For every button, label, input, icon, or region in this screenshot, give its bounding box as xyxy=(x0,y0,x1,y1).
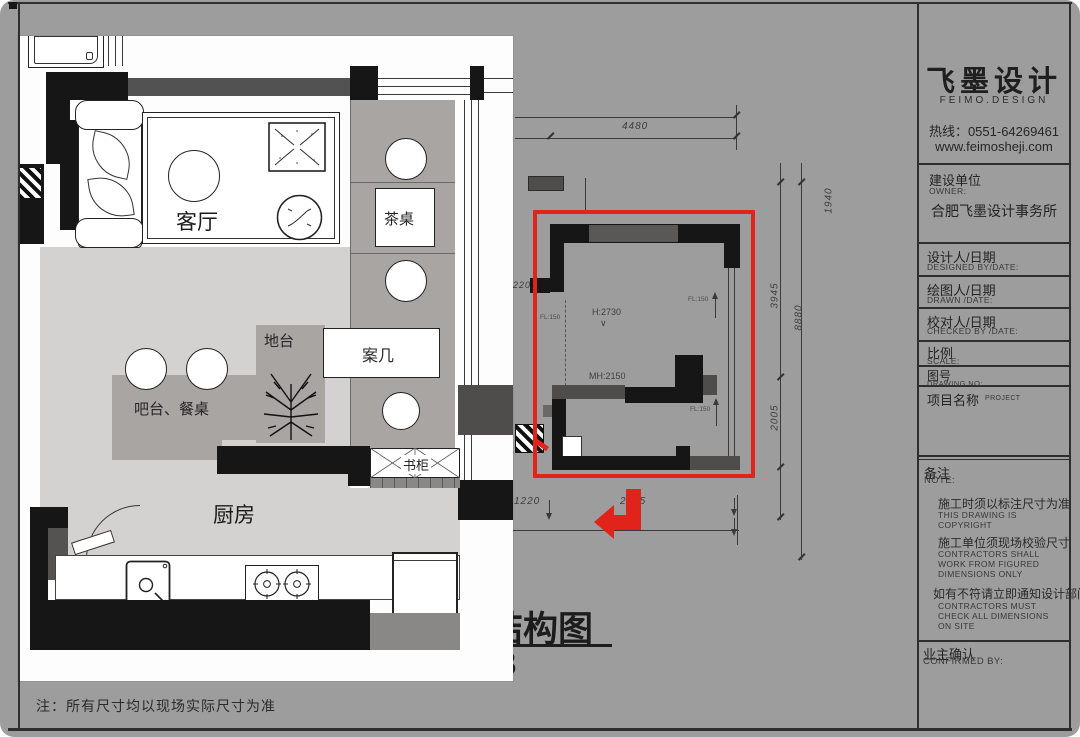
field-owner-label-en: OWNER: xyxy=(929,186,966,196)
brand-name: 飞墨设计 xyxy=(918,58,1070,100)
label-long-table: 案几 xyxy=(362,342,394,366)
dim-line-vertical xyxy=(801,163,802,560)
window-line xyxy=(378,78,470,79)
titleblock-separator xyxy=(918,640,1070,642)
label-platform: 地台 xyxy=(264,330,294,351)
window-line xyxy=(464,435,465,480)
red-arrow-head xyxy=(594,505,614,539)
plant-icon xyxy=(256,362,326,442)
field-drawingno-label-en: DRAWING NO: xyxy=(927,379,983,389)
window-line xyxy=(378,86,470,87)
titleblock-separator xyxy=(918,455,1070,457)
brand-hotline: 热线：0551-64269461 xyxy=(918,121,1070,140)
appliance-knob xyxy=(86,52,93,60)
window-line xyxy=(484,78,513,79)
dim-right-upper: 1940 xyxy=(824,187,835,213)
wall-segment xyxy=(348,446,370,486)
bar-dining-counter xyxy=(112,440,222,460)
field-designed-label-en: DESIGNED BY/DATE: xyxy=(927,262,1019,272)
strip-divider xyxy=(350,182,455,183)
window-line xyxy=(115,36,116,66)
stool xyxy=(385,138,427,180)
window-mullion xyxy=(458,385,513,435)
pillow-rug-icon xyxy=(268,122,326,172)
titleblock-separator xyxy=(918,163,1070,165)
wall-segment xyxy=(128,78,350,96)
stool xyxy=(125,348,167,390)
dim-line xyxy=(513,530,739,531)
wall-segment xyxy=(370,613,460,650)
titleblock-separator xyxy=(918,340,1070,342)
dim-bottom-left: 1220 xyxy=(514,496,540,507)
field-project-label-en: PROJECT xyxy=(985,394,1020,404)
brand-subtitle: FEIMO.DESIGN xyxy=(918,95,1070,106)
hatched-column xyxy=(19,168,41,198)
dim-arrow-stem xyxy=(549,500,550,514)
stool xyxy=(186,348,228,390)
note-item-en: THIS DRAWING IS COPYRIGHT xyxy=(938,510,1064,530)
titleblock-separator xyxy=(918,275,1070,277)
dim-right-lower: 2005 xyxy=(770,404,781,430)
fridge-line xyxy=(394,560,456,561)
dim-right-overall: 8880 xyxy=(794,304,805,330)
frame-line-bottom xyxy=(8,728,1072,731)
highlight-rectangle xyxy=(533,210,755,478)
beam-block xyxy=(528,176,564,191)
floor-area xyxy=(350,488,460,555)
sofa-armrest xyxy=(75,218,144,248)
fridge xyxy=(392,552,458,617)
label-tea-table: 茶桌 xyxy=(384,208,414,229)
confirmed-label-en: CONFIRMED BY: xyxy=(923,657,1003,667)
drawing-sheet-page: 结构图 3 4480 1940 3945 2005 8880 1220 2495… xyxy=(0,0,1080,737)
dim-right-mid: 3945 xyxy=(770,282,781,308)
wall-segment xyxy=(30,507,68,530)
field-owner-value: 合肥飞墨设计事务所 xyxy=(918,201,1070,221)
brand-website: www.feimosheji.com xyxy=(918,139,1070,154)
frame-line-left xyxy=(18,2,20,730)
note-item-en: CONTRACTORS MUST CHECK ALL DIMENSIONS ON… xyxy=(938,601,1064,631)
notes-label-en: NOTE: xyxy=(924,476,955,486)
room-label-living: 客厅 xyxy=(176,206,218,236)
wall-segment xyxy=(45,600,370,650)
dim-extension-line xyxy=(737,495,738,545)
titleblock-separator xyxy=(918,459,1070,460)
dim-left-value: 220 xyxy=(513,280,531,290)
sofa-armrest xyxy=(75,100,144,130)
red-arrow-horizontal xyxy=(612,515,641,530)
label-bookcase: 书柜 xyxy=(401,455,431,474)
frame-line-top xyxy=(8,2,1072,4)
dim-line xyxy=(515,117,737,118)
dim-arrow-down xyxy=(731,529,737,536)
wall-segment xyxy=(60,120,78,230)
dim-arrow-down xyxy=(731,509,737,516)
titleblock-separator xyxy=(918,242,1070,244)
window-line xyxy=(471,100,472,385)
round-side-table-icon xyxy=(276,194,323,241)
stool xyxy=(385,260,427,302)
strip-divider xyxy=(350,253,455,254)
note-item-en: CONTRACTORS SHALL WORK FROM FIGURED DIME… xyxy=(938,549,1064,579)
label-bar-dining: 吧台、餐桌 xyxy=(134,398,209,419)
window-line xyxy=(108,36,109,66)
strip-divider xyxy=(350,100,351,448)
window-line xyxy=(471,435,472,480)
titleblock-separator xyxy=(918,307,1070,309)
window-line xyxy=(464,100,465,385)
field-drawn-label-en: DRAWN /DATE: xyxy=(927,295,993,305)
field-checked-label-en: CHECKED BY /DATE: xyxy=(927,326,1018,336)
wall-segment xyxy=(350,66,378,100)
wall-segment xyxy=(470,66,484,100)
wall-segment xyxy=(46,72,128,100)
corner-mark xyxy=(9,2,17,9)
field-project-label: 项目名称 xyxy=(927,390,979,409)
stool xyxy=(382,392,420,430)
dim-top-value: 4480 xyxy=(622,121,648,132)
window-line xyxy=(122,36,123,66)
wall-segment xyxy=(458,480,513,520)
window-line xyxy=(378,94,470,95)
round-table xyxy=(168,150,220,202)
dim-arrow-down xyxy=(546,513,552,520)
footer-note: 注：所有尺寸均以现场实际尺寸为准 xyxy=(36,696,276,716)
window-line xyxy=(478,100,479,385)
window-line xyxy=(484,92,513,93)
wall-line xyxy=(585,178,586,212)
masonry-band xyxy=(370,478,460,488)
field-scale-label-en: SCALE: xyxy=(927,356,960,366)
note-item-cn: 如有不符请立即通知设计部门 xyxy=(933,585,1080,602)
floorplan-overlay-image: 客厅 茶桌 地台 案几 吧台、餐桌 书柜 厨房 xyxy=(18,36,513,681)
room-label-kitchen: 厨房 xyxy=(213,499,255,529)
